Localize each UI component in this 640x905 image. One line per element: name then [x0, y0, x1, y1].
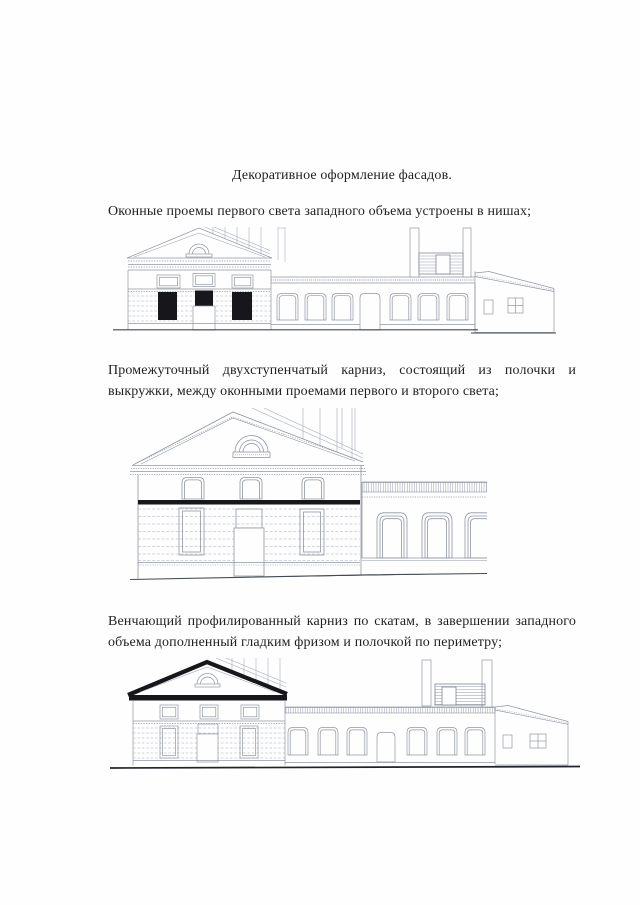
west-volume [127, 227, 285, 330]
paragraph-line: Промежуточный двухступенчатый карниз, со… [108, 360, 576, 381]
chimney-structure [410, 228, 471, 277]
wing-door [360, 294, 380, 331]
figure-intermediate-cornice [130, 408, 487, 598]
facade-elevation-drawing-3 [100, 658, 585, 785]
lunette-window [186, 244, 212, 257]
roof-slope-lines [216, 658, 286, 692]
wing-fragment [362, 482, 487, 561]
chimney-structure [422, 660, 492, 707]
entrance-door [197, 734, 218, 762]
entrance-door [193, 306, 215, 330]
annex-cross-window [530, 734, 546, 748]
paragraph-crowning-cornice: Венчающий профилированный карниз по скат… [108, 611, 576, 653]
annex-small-window [503, 735, 512, 748]
figure-facade-window-niches [113, 227, 556, 339]
annex-small-window [484, 300, 493, 314]
facade-fragment-drawing-2 [130, 408, 487, 598]
wing-windows [288, 728, 485, 763]
entablature [130, 466, 366, 475]
second-floor-windows [160, 705, 259, 719]
west-volume-fragment [130, 408, 366, 579]
facade-elevation-drawing-1 [113, 227, 556, 339]
lunette-window [233, 436, 270, 458]
ground-line [130, 574, 487, 580]
roof-slope-lines [252, 408, 363, 458]
paragraph-window-niches: Оконные проемы первого света западного о… [108, 201, 576, 222]
right-annex [495, 706, 568, 766]
pediment [127, 228, 272, 270]
one-story-wing [271, 228, 475, 330]
intermediate-cornice-black-band [138, 500, 360, 505]
paragraph-line: выкружки, между оконными проемами первог… [108, 381, 576, 402]
pediment [133, 412, 363, 465]
paragraph-line: Венчающий профилированный карниз по скат… [108, 611, 576, 632]
figure-crowning-cornice [100, 658, 585, 785]
page-title: Декоративное оформление фасадов. [108, 165, 576, 186]
crowning-cornice-pediment [128, 662, 287, 701]
west-volume [128, 658, 287, 766]
second-floor-windows [157, 274, 253, 289]
wing-door [377, 733, 395, 763]
annex-cross-window [508, 298, 523, 313]
right-annex [475, 272, 554, 333]
paragraph-intermediate-cornice: Промежуточный двухступенчатый карниз, со… [108, 360, 576, 402]
lunette-window [195, 674, 220, 688]
roof-slope-lines [205, 227, 285, 262]
second-floor-windows [182, 478, 324, 500]
entrance-door [234, 528, 264, 576]
paragraph-line: Оконные проемы первого света западного о… [108, 201, 576, 222]
ground-line [110, 767, 580, 769]
paragraph-line: объема дополненный гладким фризом и поло… [108, 632, 576, 653]
one-story-wing [285, 660, 495, 764]
document-page: Декоративное оформление фасадов. Оконные… [0, 0, 640, 905]
wing-windows [377, 513, 487, 558]
